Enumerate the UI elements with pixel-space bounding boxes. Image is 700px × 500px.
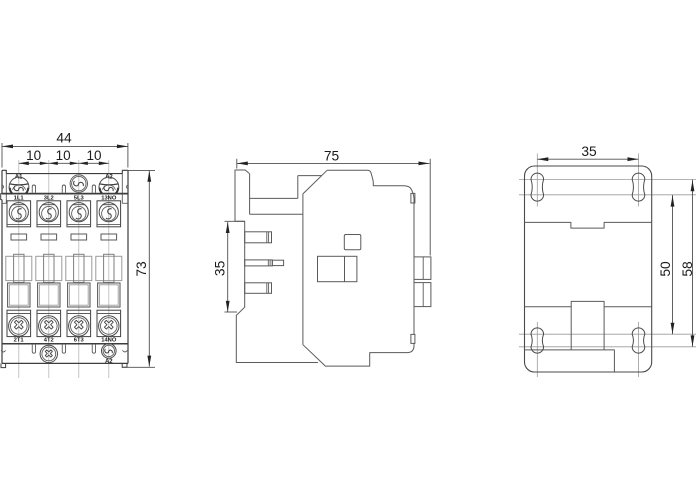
svg-text:A2: A2 bbox=[105, 359, 113, 365]
svg-text:44: 44 bbox=[56, 130, 72, 145]
svg-text:10: 10 bbox=[86, 148, 101, 163]
svg-text:35: 35 bbox=[212, 260, 227, 276]
svg-text:58: 58 bbox=[680, 261, 695, 277]
svg-text:14NO: 14NO bbox=[101, 338, 117, 344]
svg-text:10: 10 bbox=[26, 148, 41, 163]
svg-text:10: 10 bbox=[56, 148, 71, 163]
svg-text:2T1: 2T1 bbox=[14, 338, 25, 344]
svg-text:35: 35 bbox=[581, 144, 597, 159]
svg-text:73: 73 bbox=[134, 261, 149, 277]
svg-text:4T2: 4T2 bbox=[44, 338, 54, 344]
svg-text:6T3: 6T3 bbox=[74, 338, 85, 344]
svg-text:50: 50 bbox=[658, 261, 673, 277]
svg-text:75: 75 bbox=[324, 148, 340, 163]
